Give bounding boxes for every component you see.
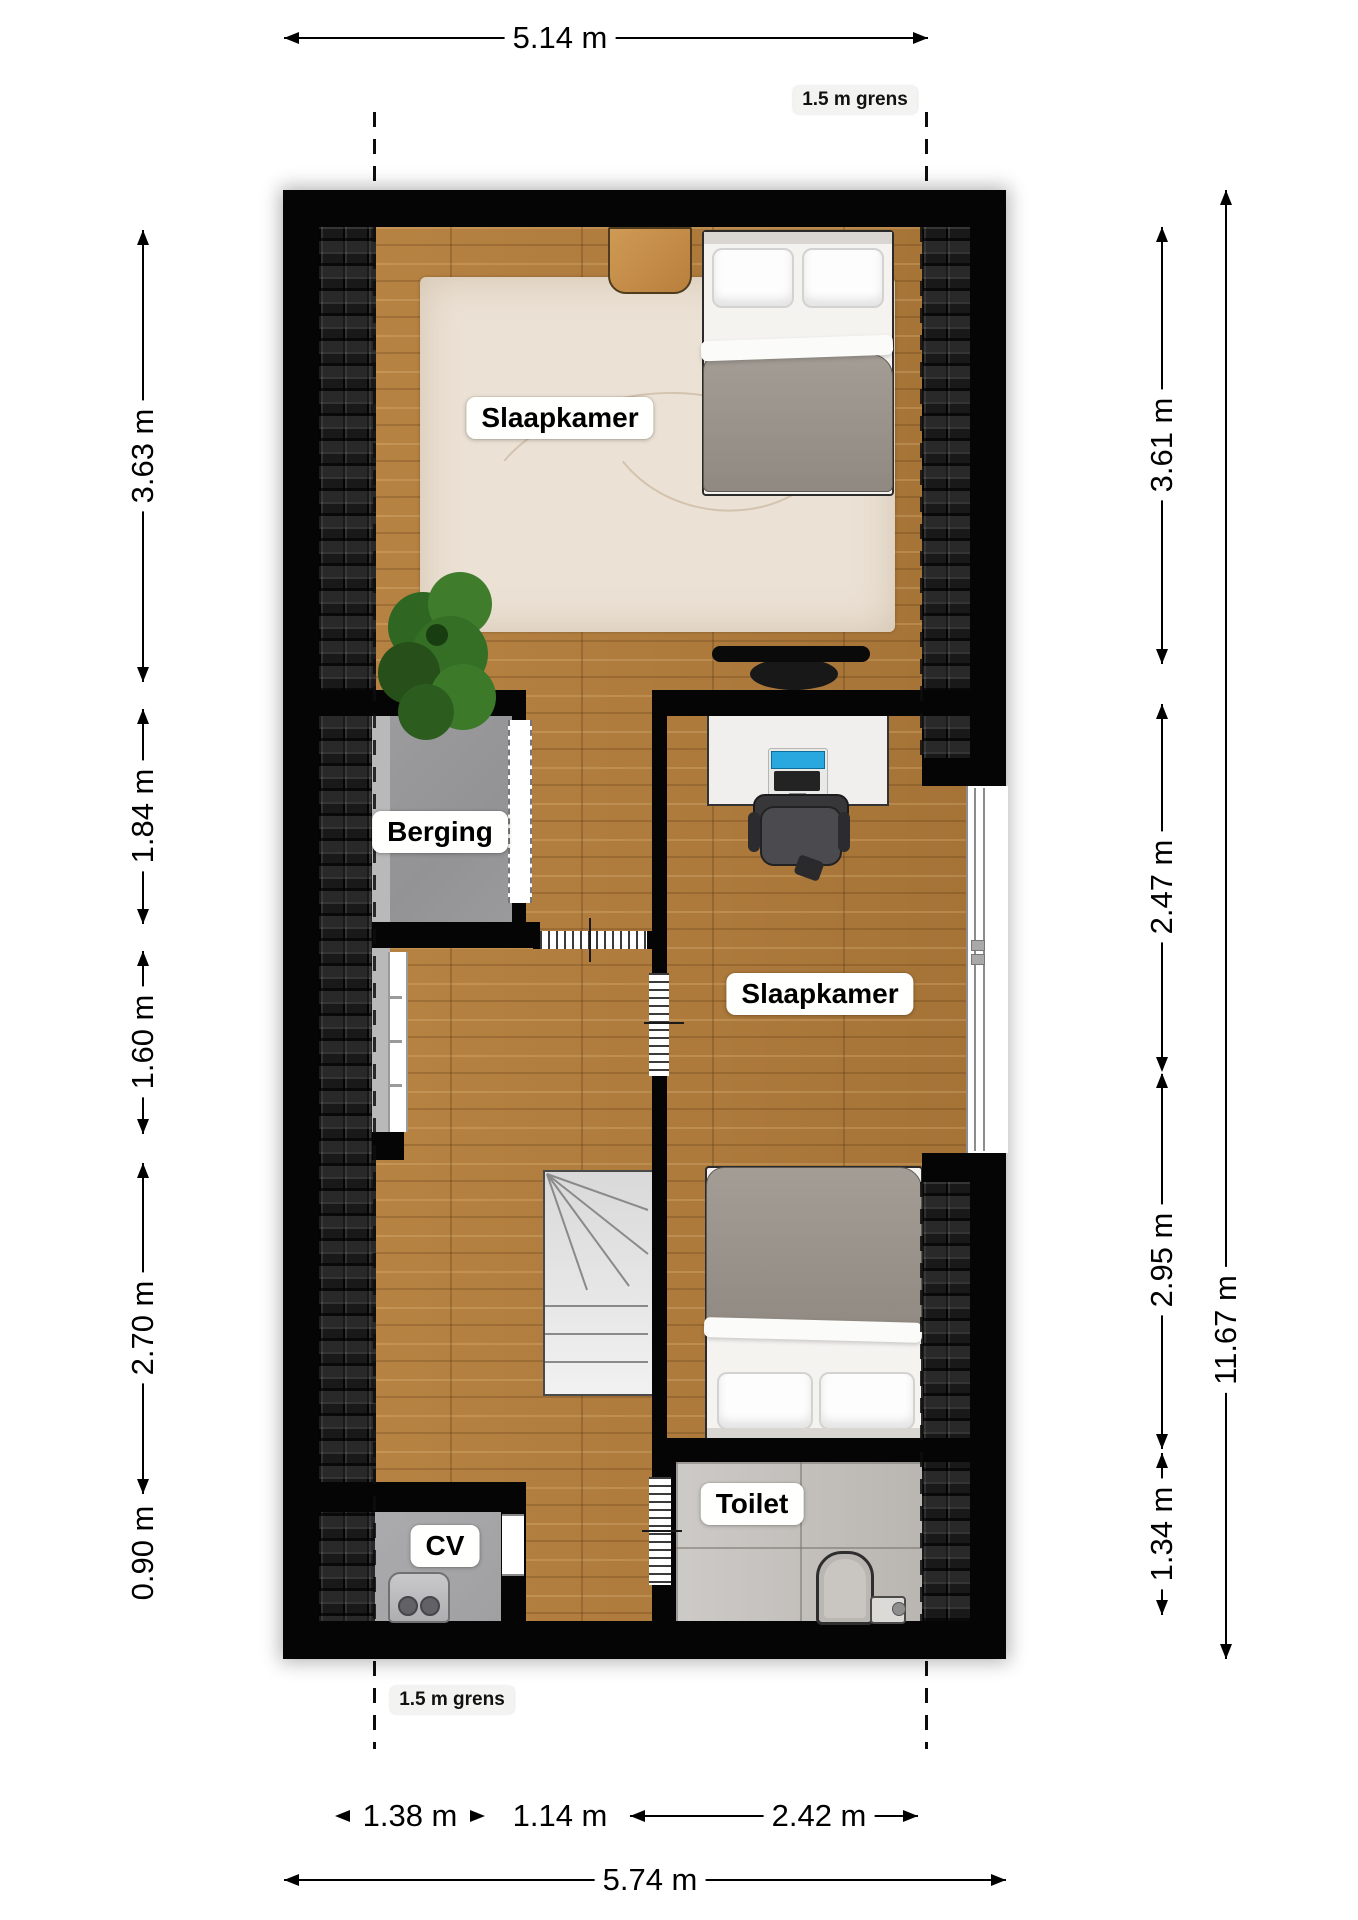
wall-toilet-top	[652, 1438, 1006, 1462]
dim-right-total: 11.67 m	[1208, 1267, 1244, 1393]
dim-line-right-total	[1225, 190, 1227, 1659]
bed-duvet	[706, 1167, 922, 1337]
roof-tiles-left	[319, 227, 376, 1621]
wall-cv-top	[319, 1482, 526, 1512]
arrow-down-icon	[1156, 1057, 1168, 1072]
door-tick	[644, 1022, 684, 1024]
arrow-down-icon	[137, 909, 149, 924]
railing-post	[647, 931, 654, 949]
dim-right-4: 1.34 m	[1144, 1479, 1180, 1590]
laptop-screen	[771, 751, 825, 769]
single-bed	[705, 1166, 923, 1442]
chair-armrest	[838, 812, 850, 852]
stair-treads	[545, 1172, 652, 1394]
pillow	[717, 1372, 813, 1430]
wall-dormer-lower	[922, 1153, 1006, 1182]
dim-bottom-3: 2.42 m	[764, 1798, 875, 1834]
cv-door	[502, 1514, 524, 1576]
room-label-storage: Berging	[372, 811, 508, 853]
dim-left-2: 1.84 m	[125, 761, 161, 872]
grens-label-top: 1.5 m grens	[793, 86, 917, 114]
arrow-up-icon	[1156, 227, 1168, 242]
pillow	[712, 248, 794, 308]
bed-duvet	[703, 354, 893, 492]
storage-door	[508, 720, 532, 903]
wall-dormer-upper	[922, 758, 1006, 786]
door-tick	[642, 1530, 682, 1532]
dim-left-5: 0.90 m	[125, 1498, 161, 1609]
room-label-toilet: Toilet	[701, 1483, 804, 1525]
window-handle	[971, 954, 985, 965]
dim-right-3: 2.95 m	[1144, 1205, 1180, 1316]
bed-headboard	[707, 1428, 921, 1438]
arrow-down-icon	[1156, 1600, 1168, 1615]
arrow-down-icon	[1220, 1644, 1232, 1659]
cv-boiler	[388, 1572, 450, 1623]
dim-bottom-2: 1.14 m	[505, 1798, 616, 1834]
arrow-up-icon	[137, 951, 149, 966]
arrow-right-icon	[903, 1810, 918, 1822]
window-frame-line	[983, 788, 985, 1151]
arrow-up-icon	[1156, 704, 1168, 719]
chair-armrest	[748, 812, 760, 852]
pillow	[802, 248, 884, 308]
grens-line-left	[373, 227, 376, 1621]
grens-label-bottom: 1.5 m grens	[390, 1686, 514, 1714]
grens-dash-bottom-left	[373, 1661, 376, 1749]
window-frame-line	[974, 788, 976, 1151]
wall-stub-left	[372, 1132, 404, 1160]
room-label-cv: CV	[411, 1525, 480, 1567]
bed-sheet-fold	[704, 1317, 922, 1343]
arrow-down-icon	[137, 667, 149, 682]
stair-railing	[540, 931, 647, 949]
arrow-down-icon	[137, 1119, 149, 1134]
grens-line-right-lower	[920, 1182, 923, 1621]
toilet-bowl	[816, 1551, 874, 1625]
grens-dash-top-right	[925, 112, 928, 190]
grens-line-right-upper	[920, 227, 923, 758]
floorplan-canvas: 5.14 m 1.5 m grens 1.5 m grens 3.63 m 1.…	[0, 0, 1358, 1920]
dormer-window	[966, 786, 1008, 1153]
roof-tiles-right-upper	[922, 227, 970, 758]
laptop-keyboard	[774, 771, 820, 791]
arrow-right-icon	[991, 1874, 1006, 1886]
room-label-bedroom-top: Slaapkamer	[466, 397, 653, 439]
arrow-up-icon	[137, 230, 149, 245]
arrow-left-icon	[284, 1874, 299, 1886]
arrow-up-icon	[1156, 1453, 1168, 1468]
arrow-up-icon	[137, 1163, 149, 1178]
window-dash	[390, 1040, 402, 1043]
dim-left-4: 2.70 m	[125, 1273, 161, 1384]
roof-tiles-right-lower	[922, 1182, 970, 1621]
double-bed	[702, 230, 894, 496]
grens-dash-top-left	[373, 112, 376, 190]
arrow-down-icon	[137, 1479, 149, 1494]
stairs	[543, 1170, 654, 1396]
pillow	[819, 1372, 915, 1430]
grens-dash-bottom-right	[925, 1661, 928, 1749]
room-label-bedroom-right: Slaapkamer	[726, 973, 913, 1015]
cistern	[870, 1596, 906, 1624]
dim-bottom-1: 1.38 m	[355, 1798, 466, 1834]
railing-post	[533, 931, 540, 949]
arrow-right-icon	[913, 32, 928, 44]
arrow-down-icon	[1156, 1434, 1168, 1449]
window-handle	[971, 940, 985, 951]
arrow-up-icon	[137, 709, 149, 724]
wall-storage-bottom	[372, 922, 540, 948]
bedroom2-door	[649, 973, 669, 1076]
dim-top-width: 5.14 m	[505, 20, 616, 56]
arrow-left-icon	[284, 32, 299, 44]
nightstand	[608, 227, 692, 294]
dim-right-1: 3.61 m	[1144, 390, 1180, 501]
arrow-right-icon	[470, 1810, 485, 1822]
arrow-left-icon	[335, 1810, 350, 1822]
window-dash	[390, 1084, 402, 1087]
dim-bottom-total: 5.74 m	[595, 1862, 706, 1898]
tv	[712, 646, 870, 662]
bed-headboard	[704, 232, 892, 244]
arrow-down-icon	[1156, 649, 1168, 664]
dim-left-1: 3.63 m	[125, 401, 161, 512]
dim-right-2: 2.47 m	[1144, 832, 1180, 943]
window-dash	[390, 996, 402, 999]
dim-left-3: 1.60 m	[125, 987, 161, 1098]
wall-bedroom2-left	[652, 690, 667, 1462]
tv-stand	[750, 658, 838, 690]
arrow-up-icon	[1156, 1073, 1168, 1088]
railing-tick	[589, 918, 591, 962]
arrow-up-icon	[1220, 190, 1232, 205]
plant	[378, 572, 506, 740]
arrow-left-icon	[630, 1810, 645, 1822]
